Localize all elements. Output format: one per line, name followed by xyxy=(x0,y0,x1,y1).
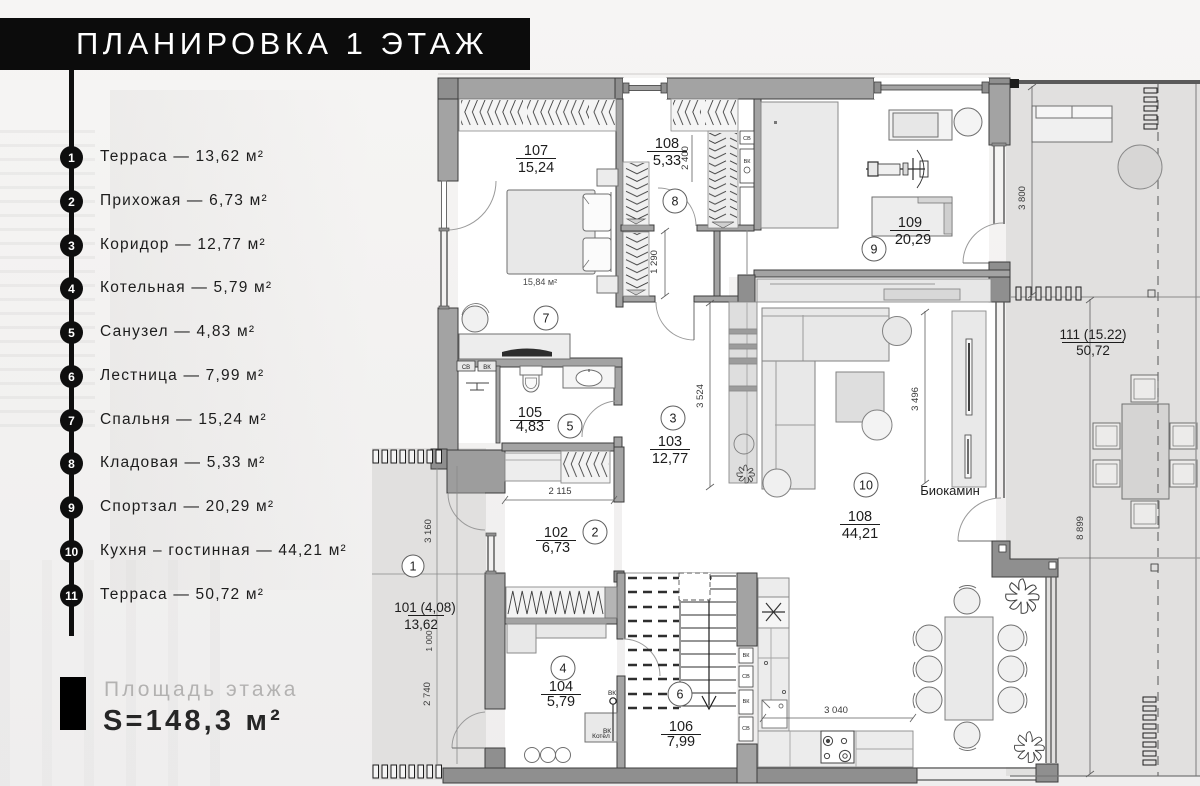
svg-text:Биокамин: Биокамин xyxy=(920,483,980,498)
svg-text:3 524: 3 524 xyxy=(695,384,706,408)
svg-text:5: 5 xyxy=(567,420,574,434)
svg-text:103: 103 xyxy=(658,434,682,450)
svg-text:1 290: 1 290 xyxy=(649,250,660,274)
svg-text:5,79: 5,79 xyxy=(547,694,575,710)
svg-text:107: 107 xyxy=(524,143,548,159)
svg-text:3 496: 3 496 xyxy=(910,387,921,411)
svg-text:8 899: 8 899 xyxy=(1075,516,1086,540)
svg-text:12,77: 12,77 xyxy=(652,451,688,467)
svg-text:2 400: 2 400 xyxy=(680,146,691,170)
svg-text:20,29: 20,29 xyxy=(895,232,931,248)
svg-text:ВК: ВК xyxy=(743,699,751,705)
svg-text:2: 2 xyxy=(592,526,599,540)
svg-text:50,72: 50,72 xyxy=(1076,343,1110,358)
svg-text:2 740: 2 740 xyxy=(422,682,433,706)
svg-text:6: 6 xyxy=(677,688,684,702)
svg-text:2 115: 2 115 xyxy=(548,486,571,497)
svg-text:6,73: 6,73 xyxy=(542,540,570,556)
svg-text:1 000: 1 000 xyxy=(424,630,434,652)
svg-text:10: 10 xyxy=(859,479,873,493)
svg-text:3 160: 3 160 xyxy=(423,519,434,543)
svg-text:СВ: СВ xyxy=(742,674,750,680)
svg-text:15,84 м²: 15,84 м² xyxy=(523,277,557,287)
svg-text:101 (4,08): 101 (4,08) xyxy=(394,600,456,615)
svg-text:111 (15.22): 111 (15.22) xyxy=(1059,327,1126,342)
svg-text:ВК: ВК xyxy=(483,365,491,371)
svg-text:8: 8 xyxy=(672,195,679,209)
svg-text:3: 3 xyxy=(670,412,677,426)
svg-text:ВК: ВК xyxy=(603,728,611,735)
svg-text:3 040: 3 040 xyxy=(824,705,848,716)
svg-text:1: 1 xyxy=(410,560,417,574)
svg-text:СВ: СВ xyxy=(743,136,751,142)
svg-text:ВК: ВК xyxy=(744,159,752,165)
svg-text:106: 106 xyxy=(669,719,693,735)
svg-text:109: 109 xyxy=(898,215,922,231)
svg-text:102: 102 xyxy=(544,525,568,541)
svg-text:ВК: ВК xyxy=(743,653,751,659)
svg-text:108: 108 xyxy=(848,509,872,525)
svg-text:9: 9 xyxy=(871,243,878,257)
svg-text:4: 4 xyxy=(560,662,567,676)
svg-text:104: 104 xyxy=(549,679,573,695)
svg-text:4,83: 4,83 xyxy=(516,419,544,435)
svg-text:7: 7 xyxy=(543,312,550,326)
svg-text:СВ: СВ xyxy=(462,365,470,371)
svg-text:44,21: 44,21 xyxy=(842,526,878,542)
svg-text:13,62: 13,62 xyxy=(404,617,438,632)
svg-text:108: 108 xyxy=(655,136,679,152)
svg-text:7,99: 7,99 xyxy=(667,734,695,750)
svg-text:ВК: ВК xyxy=(608,690,616,697)
svg-text:СВ: СВ xyxy=(742,726,750,732)
svg-text:15,24: 15,24 xyxy=(518,160,554,176)
svg-text:3 800: 3 800 xyxy=(1017,186,1028,210)
svg-text:5,33: 5,33 xyxy=(653,153,681,169)
